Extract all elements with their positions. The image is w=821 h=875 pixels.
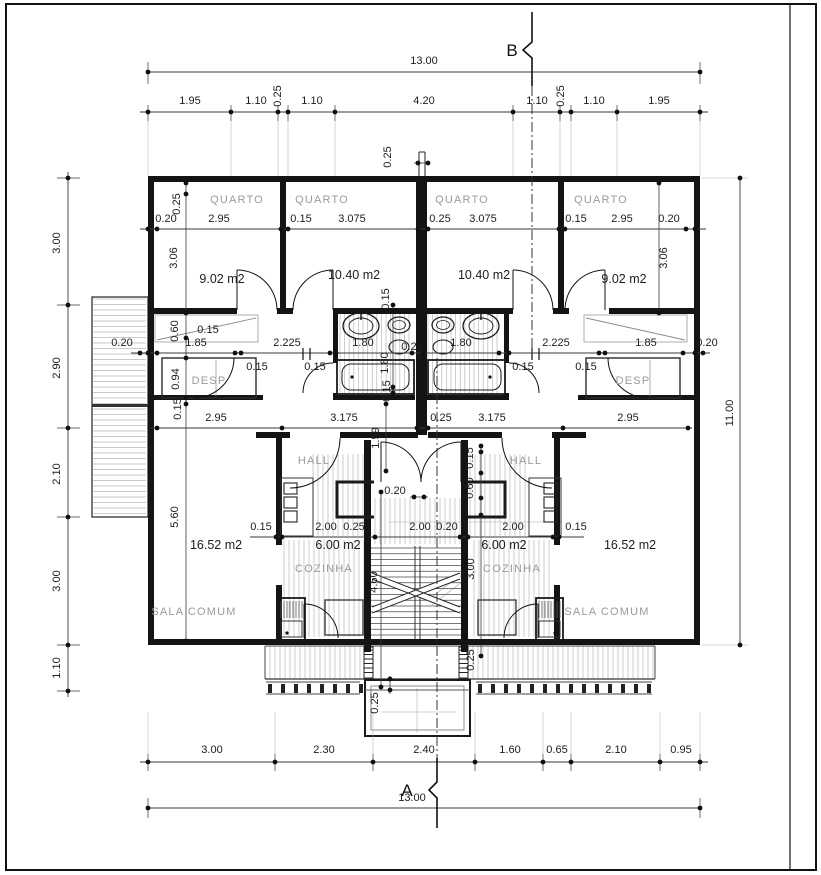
area-label: 9.02 m2 [601, 272, 646, 286]
dim-label: 13.00 [410, 55, 438, 67]
dim-label: 1.10 [526, 95, 547, 107]
dim-label: 2.00 [502, 521, 523, 533]
dim-label: 0.15 [304, 361, 325, 373]
dim-label: 0.25 [171, 193, 183, 214]
dim-label: 0.20 [155, 213, 176, 225]
dim-label: 0.25 [382, 146, 394, 167]
dim-label: 0.25 [401, 341, 422, 353]
dim-label: 0.20 [658, 213, 679, 225]
dim-label: 0.60 [169, 320, 181, 341]
dim-label: 2.00 [315, 521, 336, 533]
dim-label: 0.20 [384, 485, 405, 497]
room-label: QUARTO [435, 194, 489, 206]
dim-label: 3.00 [51, 570, 63, 591]
dim-label: 0.60 [464, 477, 476, 498]
dim-label: 1.85 [635, 337, 656, 349]
dimension-lines [57, 62, 748, 818]
section-marker-label: A [401, 781, 413, 800]
dim-label: 0.25 [555, 85, 567, 106]
dim-label: 1.80 [379, 352, 391, 373]
dim-label: 2.90 [51, 357, 63, 378]
dim-label: 0.20 [436, 521, 457, 533]
dim-label: 0.15 [381, 380, 393, 401]
area-label: 6.00 m2 [481, 538, 526, 552]
dim-label: 0.15 [565, 213, 586, 225]
dim-label: 2.225 [542, 337, 570, 349]
dim-label: 0.25 [272, 85, 284, 106]
dim-label: 1.95 [648, 95, 669, 107]
area-label: 9.02 m2 [199, 272, 244, 286]
dim-label: 0.20 [696, 337, 717, 349]
dim-label: 2.10 [51, 463, 63, 484]
room-label: COZINHA [295, 563, 353, 575]
dim-label: 0.25 [429, 213, 450, 225]
dim-label: 1.10 [51, 657, 63, 678]
area-label: 16.52 m2 [190, 538, 242, 552]
dim-label: 3.175 [478, 412, 506, 424]
dim-label: 2.95 [205, 412, 226, 424]
dim-label: 0.65 [546, 744, 567, 756]
room-label: COZINHA [483, 563, 541, 575]
dim-label: 0.15 [246, 361, 267, 373]
dim-label: 3.06 [658, 247, 670, 268]
area-label: 10.40 m2 [328, 268, 380, 282]
dim-label: 0.25 [369, 692, 381, 713]
dim-label: 3.075 [338, 213, 366, 225]
dim-label: 0.94 [170, 368, 182, 389]
floor-plan-drawing: 13.001.951.100.251.104.201.100.251.101.9… [0, 0, 821, 875]
room-label: DESP [616, 375, 651, 387]
dim-label: 1.80 [450, 337, 471, 349]
section-line-b [523, 12, 532, 355]
dim-label: 1.80 [352, 337, 373, 349]
balcony [92, 297, 148, 517]
dim-label: 3.00 [51, 232, 63, 253]
section-marker-label: B [506, 41, 517, 60]
dim-label: 5.60 [169, 506, 181, 527]
room-label: QUARTO [210, 194, 264, 206]
room-label: QUARTO [295, 194, 349, 206]
dim-label: 0.15 [512, 361, 533, 373]
dim-label: 1.59 [370, 427, 382, 448]
room-label: SALA COMUM [564, 606, 649, 618]
dim-label: 0.95 [670, 744, 691, 756]
dim-label: 0.15 [250, 521, 271, 533]
room-labels: QUARTOQUARTOQUARTOQUARTODESPDESPHALLHALL… [151, 194, 650, 618]
room-label: HALL [298, 455, 330, 467]
dim-label: 3.00 [201, 744, 222, 756]
area-label: 6.00 m2 [315, 538, 360, 552]
dim-label: 4.20 [413, 95, 434, 107]
terrace [265, 646, 655, 694]
dim-label: 2.10 [605, 744, 626, 756]
dim-label: 1.85 [185, 337, 206, 349]
dim-label: 2.95 [208, 213, 229, 225]
dim-label: 1.60 [499, 744, 520, 756]
dim-label: 0.15 [565, 521, 586, 533]
room-label: HALL [510, 455, 542, 467]
dim-label: 0.25 [430, 412, 451, 424]
dim-label: 0.15 [380, 288, 392, 309]
dim-label: 2.95 [611, 213, 632, 225]
dim-label: 2.225 [273, 337, 301, 349]
dim-label: 0.15 [197, 324, 218, 336]
dim-label: 2.95 [617, 412, 638, 424]
dim-label: 1.10 [301, 95, 322, 107]
dim-label: 0.20 [111, 337, 132, 349]
dim-label: 1.10 [583, 95, 604, 107]
dim-label: 3.075 [469, 213, 497, 225]
dim-label: 0.15 [575, 361, 596, 373]
dim-label: 1.95 [179, 95, 200, 107]
dim-label: 11.00 [724, 400, 736, 427]
dim-label: 3.00 [465, 558, 477, 579]
room-label: QUARTO [574, 194, 628, 206]
dim-label: 0.25 [343, 521, 364, 533]
dim-label: 0.15 [290, 213, 311, 225]
room-label: DESP [192, 375, 227, 387]
dim-label: 2.30 [313, 744, 334, 756]
dim-label: 0.25 [465, 649, 477, 670]
window-bands [148, 177, 672, 645]
floor-hatching [93, 299, 653, 679]
dim-label: 4.60 [368, 571, 380, 592]
stairs [371, 546, 461, 642]
dim-label: 0.15 [464, 447, 476, 468]
drawing-sheet: 13.001.951.100.251.104.201.100.251.101.9… [0, 0, 821, 875]
area-label: 16.52 m2 [604, 538, 656, 552]
room-label: SALA COMUM [151, 606, 236, 618]
dim-label: 2.00 [409, 521, 430, 533]
area-label: 10.40 m2 [458, 268, 510, 282]
dim-label: 0.15 [172, 398, 184, 419]
dim-label: 1.10 [245, 95, 266, 107]
dim-label: 2.40 [413, 744, 434, 756]
dim-label: 3.06 [168, 247, 180, 268]
dim-label: 3.175 [330, 412, 358, 424]
